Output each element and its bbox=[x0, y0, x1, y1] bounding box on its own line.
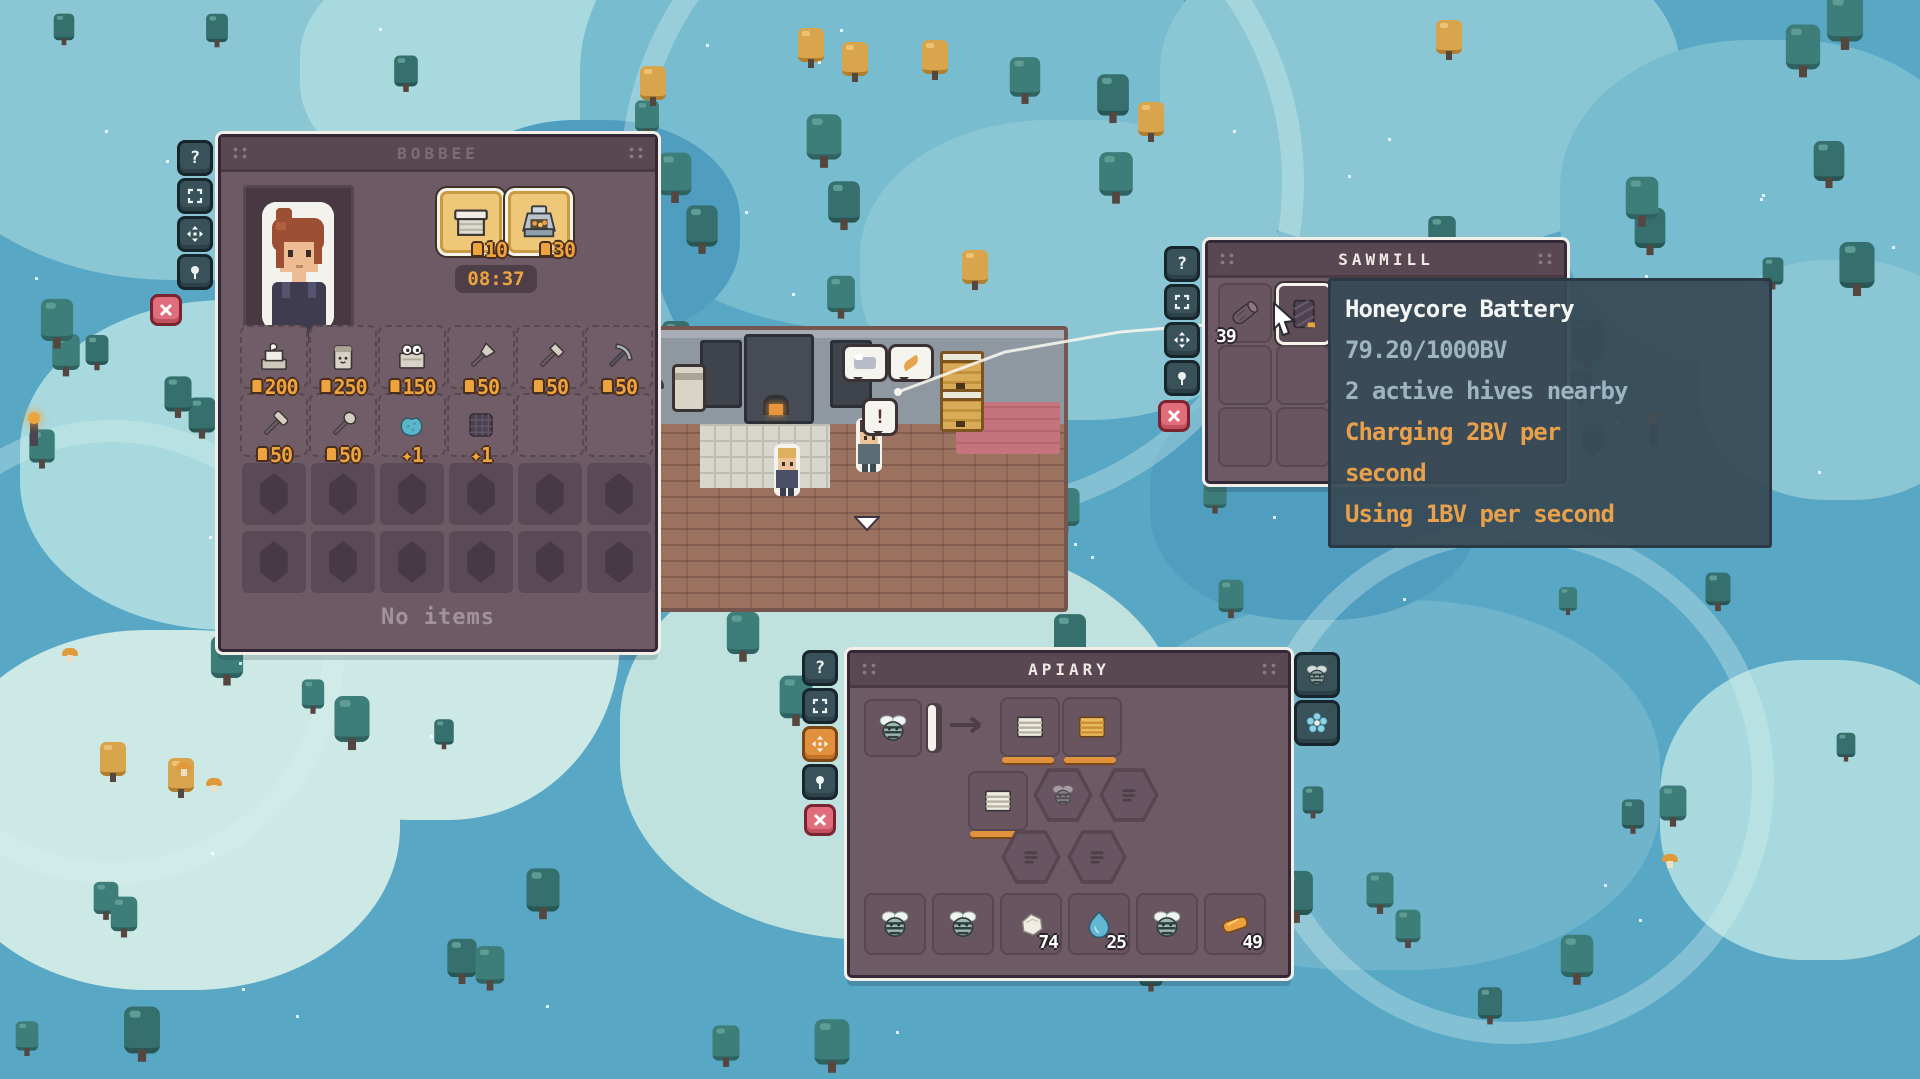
tree-decor bbox=[713, 1026, 740, 1061]
tree-decor bbox=[1218, 580, 1243, 613]
screw-dots-icon bbox=[627, 146, 645, 159]
location-marker-icon bbox=[854, 516, 880, 536]
equipped-slot-smoker[interactable]: 30 bbox=[508, 191, 570, 253]
tree-decor bbox=[1303, 786, 1324, 813]
tooltip-charging-rate: Charging 2BV per bbox=[1345, 412, 1755, 453]
move-button[interactable] bbox=[177, 216, 213, 252]
screw-dots-icon bbox=[1536, 252, 1554, 265]
tree-decor bbox=[807, 115, 842, 161]
tree-decor bbox=[189, 397, 216, 432]
coin-icon bbox=[319, 378, 332, 394]
bed-icon bbox=[854, 357, 876, 369]
mush-decor bbox=[176, 762, 192, 776]
equipped-slot-workbench[interactable]: 10 bbox=[440, 191, 502, 253]
tooltip-charge-value: 79.20/1000BV bbox=[1345, 330, 1755, 371]
inventory-slot[interactable]: 150 bbox=[378, 325, 446, 389]
tree-decor bbox=[1395, 910, 1420, 943]
inventory-slot[interactable]: ✦1 bbox=[447, 393, 515, 457]
tree-decor bbox=[1786, 25, 1820, 70]
spark-decor bbox=[706, 44, 709, 47]
item-count: 74 bbox=[1038, 932, 1058, 953]
window-titlebar[interactable]: BOBBEE bbox=[221, 137, 655, 172]
sponge-icon bbox=[395, 408, 429, 442]
tree-decor bbox=[1367, 873, 1394, 908]
product-slot[interactable] bbox=[932, 893, 994, 955]
spark-decor bbox=[1074, 543, 1077, 546]
product-slot[interactable] bbox=[864, 893, 926, 955]
bee-icon bbox=[1150, 907, 1184, 941]
tree-decor bbox=[86, 335, 109, 365]
cooldown-timer: 08:37 bbox=[455, 265, 537, 293]
sawmill-slot-empty[interactable] bbox=[1276, 407, 1330, 467]
beehive[interactable] bbox=[940, 354, 984, 394]
resize-button[interactable] bbox=[177, 178, 213, 214]
close-button[interactable] bbox=[150, 294, 182, 326]
bee-slot[interactable] bbox=[309, 461, 377, 527]
tree-decor bbox=[394, 55, 418, 86]
tree-decor bbox=[124, 1007, 160, 1054]
window-titlebar[interactable]: APIARY bbox=[850, 653, 1288, 688]
resize-button[interactable] bbox=[802, 688, 838, 724]
close-icon bbox=[158, 302, 174, 318]
window-title: APIARY bbox=[1028, 660, 1110, 679]
close-icon bbox=[1166, 408, 1182, 424]
speech-bubble-item bbox=[888, 344, 934, 382]
flower-tab-button[interactable] bbox=[1294, 700, 1340, 746]
inventory-slot-empty[interactable] bbox=[585, 393, 653, 457]
bee-slot[interactable] bbox=[378, 529, 446, 595]
spark-decor bbox=[1892, 246, 1895, 249]
tree-decor bbox=[100, 742, 126, 776]
apiary-bee-input-slot[interactable] bbox=[864, 699, 922, 757]
move-icon bbox=[187, 226, 203, 242]
player-portrait bbox=[243, 185, 354, 343]
coin-icon bbox=[325, 446, 338, 462]
resize-icon bbox=[1174, 294, 1190, 310]
spark-decor bbox=[546, 1005, 549, 1008]
spark-decor bbox=[1091, 556, 1094, 559]
tree-decor bbox=[1138, 102, 1164, 136]
coin-icon bbox=[256, 446, 269, 462]
move-button[interactable] bbox=[1164, 322, 1200, 358]
bee-slot[interactable] bbox=[516, 529, 584, 595]
honeycore-battery-icon bbox=[1287, 297, 1321, 331]
tree-decor bbox=[1099, 152, 1133, 196]
item-count: 150 bbox=[388, 375, 435, 399]
speech-bubble-sleep bbox=[842, 344, 888, 382]
tree-decor bbox=[1436, 20, 1462, 54]
frame-empty-icon bbox=[1013, 710, 1047, 744]
comb-lines-icon bbox=[1018, 844, 1044, 870]
tree-decor bbox=[53, 14, 74, 41]
coin-icon bbox=[463, 378, 476, 394]
item-count: 39 bbox=[1216, 326, 1236, 347]
pin-icon bbox=[1174, 370, 1190, 386]
spark-decor bbox=[1639, 919, 1642, 922]
tree-decor bbox=[164, 377, 191, 412]
inventory-slot[interactable]: ✦1 bbox=[378, 393, 446, 457]
item-count: ✦1 bbox=[401, 443, 423, 467]
tree-decor bbox=[658, 152, 691, 195]
spark-decor bbox=[745, 211, 748, 214]
inventory-slot[interactable]: 200 bbox=[240, 325, 308, 389]
no-items-label: No items bbox=[221, 605, 655, 630]
spark-decor bbox=[105, 130, 108, 133]
tree-decor bbox=[828, 182, 860, 223]
close-button[interactable] bbox=[1158, 400, 1190, 432]
item-count: 50 bbox=[532, 375, 568, 399]
quill-icon bbox=[901, 355, 920, 372]
spark-decor bbox=[1818, 471, 1821, 474]
tree-decor bbox=[526, 869, 559, 912]
jar-icon bbox=[257, 340, 291, 374]
spark-decor bbox=[1348, 175, 1351, 178]
window-title: BOBBEE bbox=[397, 144, 479, 163]
frame-empty-icon bbox=[981, 784, 1015, 818]
spark-decor bbox=[430, 735, 433, 738]
spark-decor bbox=[1760, 198, 1763, 201]
trowel-icon bbox=[464, 340, 498, 374]
inventory-slot[interactable]: 250 bbox=[309, 325, 377, 389]
speech-bubble-alert: ! bbox=[862, 398, 898, 436]
inventory-slot[interactable]: 50 bbox=[585, 325, 653, 389]
close-icon bbox=[812, 812, 828, 828]
screw-dots-icon bbox=[231, 146, 249, 159]
tile-floor-patch bbox=[700, 424, 830, 488]
frame-progress-underline bbox=[1002, 757, 1054, 763]
smoker-icon bbox=[519, 202, 559, 242]
tree-decor bbox=[334, 696, 369, 742]
tree-decor bbox=[1660, 785, 1687, 820]
bee-slot[interactable] bbox=[447, 529, 515, 595]
tree-decor bbox=[16, 1021, 39, 1051]
inventory-slot[interactable]: 50 bbox=[240, 393, 308, 457]
sawmill-slot-empty[interactable] bbox=[1276, 345, 1330, 405]
tooltip-title: Honeycore Battery bbox=[1345, 289, 1755, 330]
honeycore-battery-slot[interactable] bbox=[1276, 283, 1332, 345]
spark-decor bbox=[818, 61, 821, 64]
pickaxe-icon bbox=[602, 340, 636, 374]
tree-decor bbox=[842, 42, 868, 76]
bee-box-icon bbox=[395, 340, 429, 374]
product-slot[interactable]: 74 bbox=[1000, 893, 1062, 955]
item-count: 50 bbox=[601, 375, 637, 399]
tree-decor bbox=[686, 205, 717, 246]
tooltip-charging-rate-wrap: second bbox=[1345, 453, 1755, 494]
move-icon bbox=[1174, 332, 1190, 348]
comb-cell[interactable] bbox=[1066, 829, 1128, 885]
pin-button[interactable] bbox=[177, 254, 213, 290]
tree-decor bbox=[1839, 242, 1874, 288]
furnace[interactable] bbox=[744, 334, 814, 424]
tree-decor bbox=[1813, 141, 1844, 181]
spark-decor bbox=[792, 293, 795, 296]
close-button[interactable] bbox=[804, 804, 836, 836]
mush-decor bbox=[1662, 854, 1678, 868]
player-inventory-window[interactable]: BOBBEE 10 30 08:37 20 bbox=[218, 134, 658, 652]
item-count: 10 bbox=[471, 238, 507, 262]
spark-decor bbox=[209, 536, 212, 539]
comb-cell[interactable] bbox=[1032, 767, 1094, 823]
comb-cell[interactable] bbox=[1098, 767, 1160, 823]
queen-bee-icon bbox=[1050, 782, 1076, 808]
item-count: 50 bbox=[463, 375, 499, 399]
coin-icon bbox=[250, 378, 263, 394]
spark-decor bbox=[1762, 194, 1765, 197]
mush-decor bbox=[206, 778, 222, 792]
net-icon bbox=[464, 408, 498, 442]
canister-prop[interactable] bbox=[672, 364, 706, 412]
bee-slot[interactable] bbox=[240, 461, 308, 527]
tree-decor bbox=[798, 28, 824, 62]
workshop-building: ! bbox=[588, 326, 1068, 612]
tree-decor bbox=[726, 612, 759, 655]
tree-decor bbox=[206, 14, 228, 43]
tree-decor bbox=[1097, 75, 1129, 116]
window-title: SAWMILL bbox=[1338, 250, 1433, 269]
hammer-icon bbox=[257, 408, 291, 442]
resize-icon bbox=[187, 188, 203, 204]
swarm-tab-button[interactable] bbox=[1294, 652, 1340, 698]
tree-decor bbox=[1010, 57, 1040, 97]
tree-decor bbox=[1706, 572, 1731, 605]
bee-slot[interactable] bbox=[309, 529, 377, 595]
frame-slot[interactable] bbox=[968, 771, 1028, 831]
spark-decor bbox=[211, 852, 214, 855]
frame-full-icon bbox=[1075, 710, 1109, 744]
spark-decor bbox=[242, 988, 245, 991]
bee-icon bbox=[946, 907, 980, 941]
spark-decor bbox=[1388, 138, 1391, 141]
spark-decor bbox=[840, 29, 843, 32]
product-slot[interactable]: 25 bbox=[1068, 893, 1130, 955]
inventory-slot[interactable]: 50 bbox=[309, 393, 377, 457]
workbench-icon bbox=[451, 202, 491, 242]
bee-slot[interactable] bbox=[516, 461, 584, 527]
inventory-slot[interactable]: 50 bbox=[447, 325, 515, 389]
tree-decor bbox=[1836, 733, 1855, 757]
canister-icon bbox=[326, 340, 360, 374]
arrow-right-icon bbox=[948, 715, 994, 735]
bee-icon bbox=[1304, 662, 1330, 688]
spark-decor bbox=[379, 28, 382, 31]
tree-decor bbox=[1827, 0, 1863, 41]
tree-decor bbox=[1621, 799, 1643, 828]
tree-decor bbox=[815, 1019, 850, 1065]
item-count: 49 bbox=[1242, 932, 1262, 953]
inventory-slot-empty[interactable] bbox=[516, 393, 584, 457]
bee-icon bbox=[878, 907, 912, 941]
tree-decor bbox=[827, 275, 855, 311]
frame-slot[interactable] bbox=[1062, 697, 1122, 757]
spark-decor bbox=[896, 1031, 899, 1034]
scoop-icon bbox=[326, 408, 360, 442]
coin-icon bbox=[539, 241, 552, 257]
tree-decor bbox=[40, 299, 72, 341]
item-count: 25 bbox=[1106, 932, 1126, 953]
coin-icon bbox=[471, 241, 484, 257]
resize-icon bbox=[812, 698, 828, 714]
tree-decor bbox=[302, 679, 324, 708]
tooltip-hives-info: 2 active hives nearby bbox=[1345, 371, 1755, 412]
tree-decor bbox=[476, 946, 505, 984]
move-button-active[interactable] bbox=[802, 726, 838, 762]
bee-slot[interactable] bbox=[447, 461, 515, 527]
inventory-slot[interactable]: 50 bbox=[516, 325, 584, 389]
spark-decor bbox=[1273, 516, 1276, 519]
bee-slot[interactable] bbox=[378, 461, 446, 527]
move-icon bbox=[812, 736, 828, 752]
apiary-progress-bar bbox=[926, 703, 942, 753]
wall-window bbox=[700, 340, 742, 408]
axe-icon bbox=[533, 340, 567, 374]
log-input-slot[interactable]: 39 bbox=[1218, 283, 1272, 343]
tree-decor bbox=[1626, 177, 1659, 220]
lantern-decor bbox=[30, 420, 38, 446]
frame-progress-underline bbox=[1064, 757, 1116, 763]
spark-decor bbox=[1604, 884, 1607, 887]
spark-decor bbox=[1233, 130, 1236, 133]
item-count: 30 bbox=[539, 238, 575, 262]
spark-decor bbox=[35, 277, 38, 280]
tree-decor bbox=[447, 939, 476, 977]
bee-slot[interactable] bbox=[585, 529, 653, 595]
pin-icon bbox=[812, 774, 828, 790]
tree-decor bbox=[1478, 987, 1502, 1019]
tree-decor bbox=[434, 720, 454, 746]
tree-decor bbox=[640, 66, 666, 100]
tree-decor bbox=[1559, 587, 1577, 611]
bee-slot[interactable] bbox=[240, 529, 308, 595]
bee-icon bbox=[876, 711, 910, 745]
ring-decor bbox=[1250, 520, 1774, 1044]
product-slot[interactable] bbox=[1136, 893, 1198, 955]
comb-lines-icon bbox=[1116, 782, 1142, 808]
item-tooltip: Honeycore Battery 79.20/1000BV 2 active … bbox=[1328, 278, 1772, 548]
sawmill-slot-empty[interactable] bbox=[1218, 345, 1272, 405]
item-count: 250 bbox=[319, 375, 366, 399]
pin-icon bbox=[187, 264, 203, 280]
comb-cell[interactable] bbox=[1000, 829, 1062, 885]
spark-decor bbox=[166, 160, 169, 163]
screw-dots-icon bbox=[860, 662, 878, 675]
item-count: 50 bbox=[256, 443, 292, 467]
spark-decor bbox=[1403, 598, 1406, 601]
product-slot[interactable]: 49 bbox=[1204, 893, 1266, 955]
player-character bbox=[770, 442, 804, 502]
screw-dots-icon bbox=[1218, 252, 1236, 265]
exclamation-text: ! bbox=[874, 406, 885, 428]
tree-decor bbox=[111, 897, 138, 932]
spark-decor bbox=[296, 1015, 299, 1018]
frame-slot[interactable] bbox=[1000, 697, 1060, 757]
coin-icon bbox=[532, 378, 545, 394]
comb-lines-icon bbox=[1084, 844, 1110, 870]
item-count: ✦1 bbox=[470, 443, 492, 467]
beehive[interactable] bbox=[940, 392, 984, 432]
screw-dots-icon bbox=[1260, 662, 1278, 675]
sawmill-slot-empty[interactable] bbox=[1218, 407, 1272, 467]
tree-decor bbox=[1561, 934, 1594, 977]
item-count: 200 bbox=[250, 375, 297, 399]
bee-slot[interactable] bbox=[585, 461, 653, 527]
help-button[interactable]: ? bbox=[177, 140, 213, 176]
help-button[interactable]: ? bbox=[802, 650, 838, 686]
resize-button[interactable] bbox=[1164, 284, 1200, 320]
spark-decor bbox=[239, 662, 242, 665]
coin-icon bbox=[388, 378, 401, 394]
item-count: 50 bbox=[325, 443, 361, 467]
flower-icon bbox=[1304, 710, 1330, 736]
pin-button[interactable] bbox=[1164, 360, 1200, 396]
mush-decor bbox=[62, 648, 78, 662]
tree-decor bbox=[962, 250, 988, 284]
tree-decor bbox=[922, 40, 948, 74]
coin-icon bbox=[601, 378, 614, 394]
pin-button[interactable] bbox=[802, 764, 838, 800]
window-titlebar[interactable]: SAWMILL bbox=[1208, 243, 1564, 278]
log-icon bbox=[1228, 296, 1262, 330]
apiary-window[interactable]: APIARY 74 25 49 bbox=[847, 650, 1291, 978]
help-button[interactable]: ? bbox=[1164, 246, 1200, 282]
tooltip-usage-rate: Using 1BV per second bbox=[1345, 494, 1755, 535]
